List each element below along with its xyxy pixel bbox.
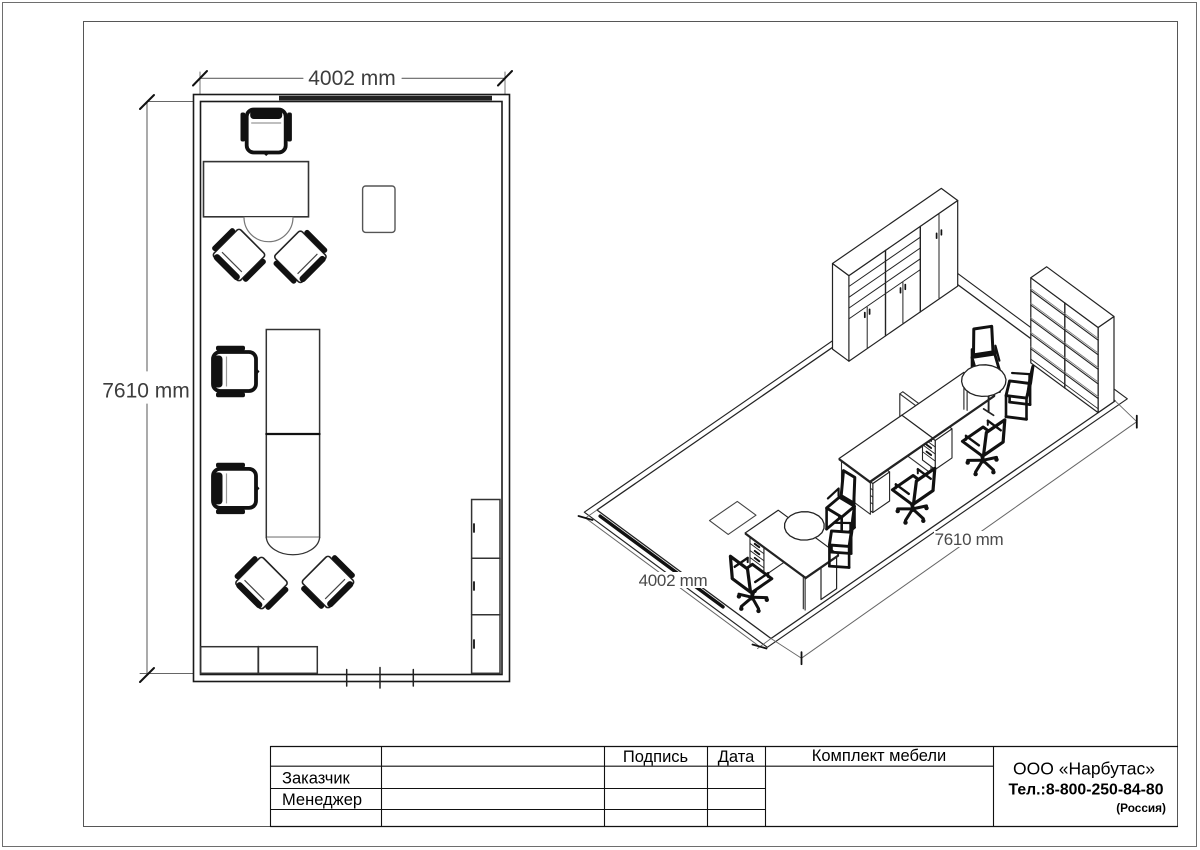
svg-text:7610 mm: 7610 mm xyxy=(935,530,1004,549)
svg-text:Комплект мебели: Комплект мебели xyxy=(812,747,947,765)
svg-text:(Россия): (Россия) xyxy=(1116,801,1166,815)
svg-text:4002 mm: 4002 mm xyxy=(639,571,708,590)
svg-text:Подпись: Подпись xyxy=(623,748,688,766)
svg-text:4002 mm: 4002 mm xyxy=(308,67,396,90)
svg-text:7610 mm: 7610 mm xyxy=(102,380,190,403)
svg-text:Менеджер: Менеджер xyxy=(282,791,362,809)
svg-text:ООО «Нарбутас»: ООО «Нарбутас» xyxy=(1013,759,1155,779)
svg-text:Тел.:8-800-250-84-80: Тел.:8-800-250-84-80 xyxy=(1008,782,1163,799)
svg-text:Заказчик: Заказчик xyxy=(282,770,351,788)
svg-text:Дата: Дата xyxy=(718,748,755,766)
